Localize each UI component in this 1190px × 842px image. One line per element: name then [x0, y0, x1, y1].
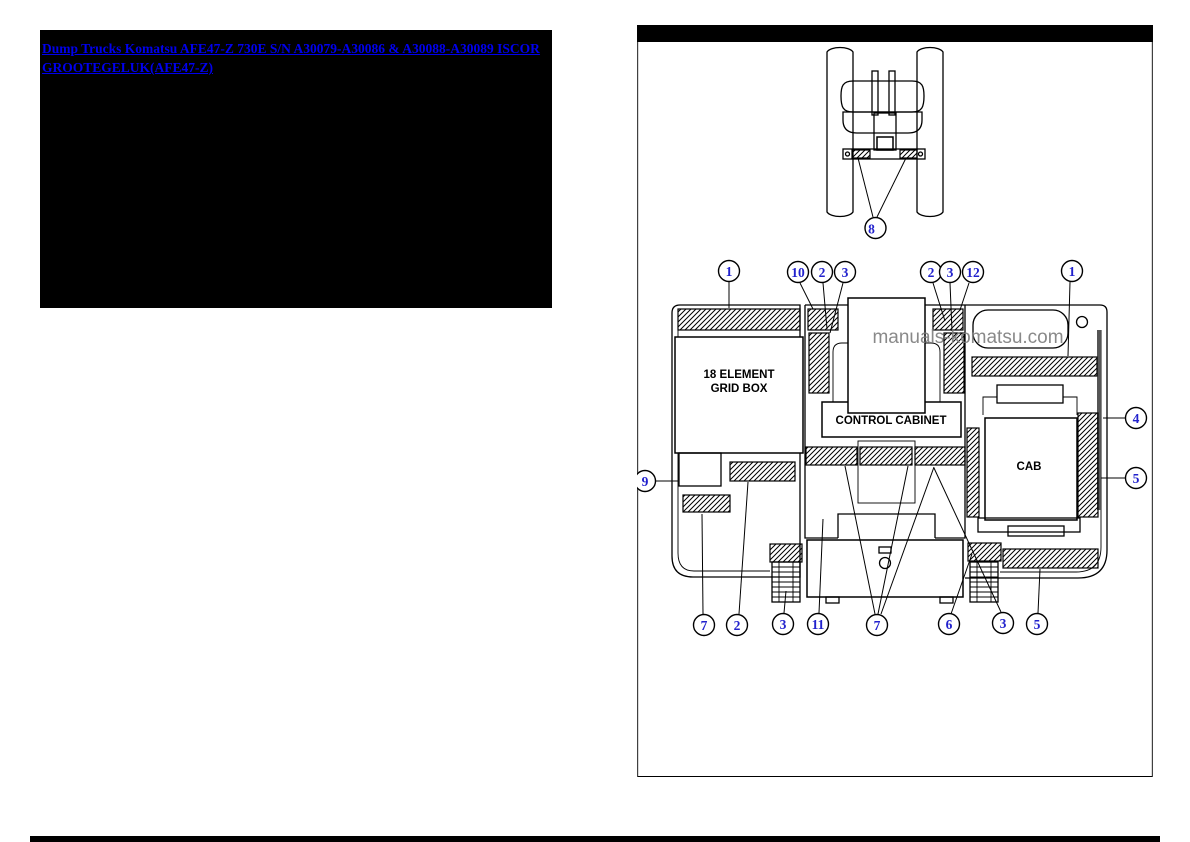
- center-bracket-box: [877, 137, 893, 150]
- svg-text:3: 3: [780, 617, 787, 632]
- callout-5-bottom: 5: [1027, 614, 1048, 635]
- callout-3-top-right: 3: [940, 262, 961, 283]
- front-foot-left: [826, 597, 839, 603]
- diagram-panel-top-bar: [637, 25, 1153, 42]
- callout-3-bottom-right: 3: [993, 613, 1014, 634]
- callout-1-top-right: 1: [1062, 261, 1083, 282]
- svg-text:9: 9: [642, 474, 649, 489]
- callout-6: 6: [939, 614, 960, 635]
- callout-4: 4: [1126, 408, 1147, 429]
- svg-text:12: 12: [966, 265, 980, 280]
- svg-text:3: 3: [842, 265, 849, 280]
- center-bottom-grating-1: [806, 447, 857, 465]
- cab-top-box: [997, 385, 1063, 403]
- mount-pad-right: [900, 150, 917, 158]
- blower-box: [848, 298, 925, 413]
- svg-text:4: 4: [1133, 411, 1140, 426]
- svg-text:5: 5: [1034, 617, 1041, 632]
- svg-text:11: 11: [812, 617, 825, 632]
- callout-10: 10: [788, 262, 809, 283]
- cab-step-inner: [1008, 526, 1064, 536]
- truck-front-view: [827, 48, 943, 218]
- callout-8: 8: [865, 218, 886, 239]
- grid-box: [675, 337, 803, 453]
- front-foot-right: [940, 597, 953, 603]
- svg-text:7: 7: [874, 618, 881, 633]
- callout-2-top-right: 2: [921, 262, 942, 283]
- cab-assembly: CAB: [967, 385, 1098, 536]
- document-title-line2: GROOTEGELUK(AFE47-Z): [42, 58, 548, 77]
- grid-box-label-line2: GRID BOX: [711, 383, 768, 395]
- callout-2-top-left: 2: [812, 262, 833, 283]
- mount-bolt-right: [919, 152, 923, 156]
- truck-deck-layout-diagram: 18 ELEMENT GRID BOX CONTROL CABINET: [637, 42, 1153, 782]
- center-grating-side-left: [809, 333, 829, 393]
- right-handrail-grating: [972, 357, 1097, 376]
- center-post-left: [872, 71, 878, 115]
- manual-page: { "link": { "lines": [ "Dump Trucks Koma…: [0, 0, 1190, 842]
- svg-text:7: 7: [701, 618, 708, 633]
- svg-text:2: 2: [928, 265, 935, 280]
- right-bottom-grating: [1003, 549, 1098, 568]
- control-cabinet-label: CONTROL CABINET: [836, 415, 947, 427]
- watermark-text: manuals-komatsu.com: [872, 327, 1063, 348]
- frame-rail-right: [917, 48, 943, 217]
- callout-12: 12: [963, 262, 984, 283]
- svg-text:3: 3: [947, 265, 954, 280]
- callout-3-bottom-left: 3: [773, 614, 794, 635]
- svg-text:1: 1: [726, 264, 733, 279]
- left-deck-grating-2: [683, 495, 730, 512]
- cab-left-grating: [967, 428, 979, 517]
- page-bottom-bar: [30, 836, 1160, 842]
- document-title-panel: Dump Trucks Komatsu AFE47-Z 730E S/N A30…: [40, 30, 552, 308]
- svg-text:2: 2: [819, 265, 826, 280]
- left-deck-hatch-box: [679, 453, 721, 486]
- callout-9: 9: [637, 471, 656, 492]
- filler-cap: [1077, 317, 1088, 328]
- document-title-link[interactable]: Dump Trucks Komatsu AFE47-Z 730E S/N A30…: [42, 39, 548, 77]
- left-deck-grating-1: [730, 462, 795, 481]
- center-bottom-grating-3: [915, 447, 965, 465]
- mount-bolt-left: [846, 152, 850, 156]
- callout-11: 11: [808, 614, 829, 635]
- svg-text:8: 8: [868, 222, 875, 237]
- svg-text:5: 5: [1133, 471, 1140, 486]
- document-title-line1: Dump Trucks Komatsu AFE47-Z 730E S/N A30…: [42, 39, 548, 58]
- svg-text:10: 10: [791, 265, 805, 280]
- grid-box-label-line1: 18 ELEMENT: [704, 369, 775, 381]
- mount-pad-left: [852, 150, 870, 158]
- cab-label: CAB: [1017, 461, 1042, 473]
- leader-lines-front: [858, 158, 906, 217]
- center-post-right: [889, 71, 895, 115]
- callout-1-top-left: 1: [719, 261, 740, 282]
- svg-text:2: 2: [734, 618, 741, 633]
- left-handrail-grating: [678, 309, 800, 330]
- svg-text:6: 6: [946, 617, 953, 632]
- callout-2-bottom: 2: [727, 615, 748, 636]
- callout-7-bottom-center: 7: [867, 615, 888, 636]
- callout-7-bottom-left: 7: [694, 615, 715, 636]
- cab-right-grating: [1078, 413, 1098, 517]
- svg-text:3: 3: [1000, 616, 1007, 631]
- center-bottom-grating-2: [860, 447, 912, 465]
- callout-5-right: 5: [1126, 468, 1147, 489]
- callout-3-top-left: 3: [835, 262, 856, 283]
- svg-text:1: 1: [1069, 264, 1076, 279]
- crossmember-lower: [843, 112, 922, 133]
